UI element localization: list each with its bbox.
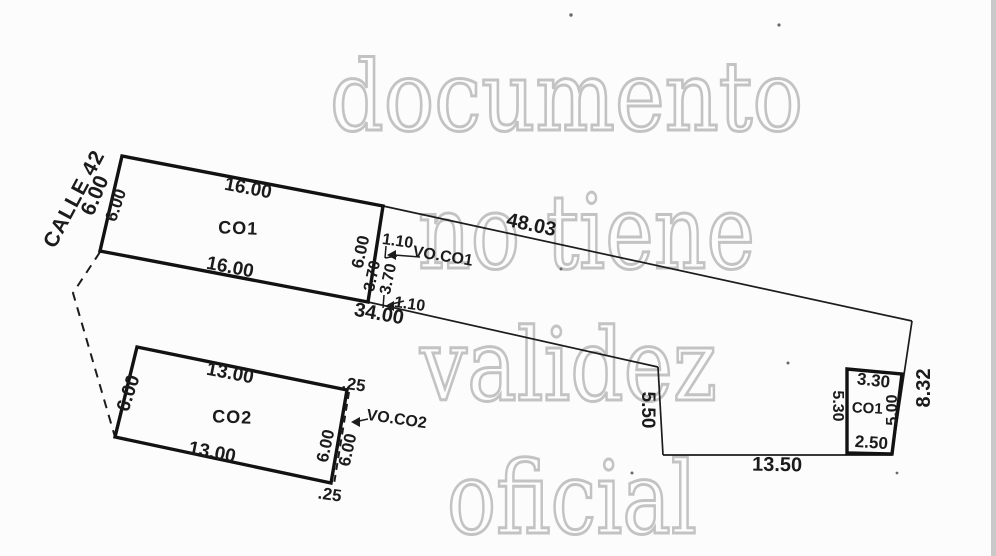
scan-speck: [569, 13, 572, 16]
scan-speck: [560, 268, 563, 271]
plan-drawing: documento no tiene validez oficial: [0, 0, 996, 556]
scan-speck: [787, 362, 790, 365]
scan-speck: [631, 472, 634, 475]
scanned-survey-plan: documento no tiene validez oficial: [0, 0, 996, 556]
watermark-word-oficial: oficial: [447, 440, 697, 556]
co2-south-label: 13.00: [187, 438, 238, 468]
co2-north-label: 13.00: [205, 359, 256, 389]
scan-speck: [896, 472, 899, 475]
boundary-south-label: 13.50: [752, 454, 802, 477]
annex-east-label: 5.00: [884, 394, 901, 425]
annex-name-label: CO1: [851, 399, 883, 418]
co2-offset-bottom-label: .25: [317, 484, 343, 506]
watermark-word-no-tiene: no tiene: [418, 173, 755, 293]
boundary-step-label: 5.50: [637, 392, 658, 429]
annex-west-label: 5.30: [829, 390, 846, 421]
co1-south-label: 16.00: [205, 253, 256, 283]
watermark-word-validez: validez: [419, 307, 717, 424]
co1-name-label: CO1: [218, 217, 259, 238]
co2-west-label: 6.00: [113, 372, 144, 414]
co2-name-label: CO2: [212, 406, 253, 427]
vo-co1-arrowhead: [387, 250, 396, 260]
watermark-word-documento: documento: [330, 41, 803, 153]
annex-north-label: 3.30: [856, 369, 891, 391]
vo-co2-name-label: VO.CO2: [366, 407, 428, 432]
co2-offset-top-label: .25: [341, 374, 367, 396]
annex-south-label: 2.50: [854, 432, 888, 453]
scan-speck: [777, 23, 780, 26]
vo-co2-arrowhead: [351, 417, 360, 427]
boundary-east-label: 8.32: [913, 369, 935, 408]
boundary-west-dashed-line: [73, 252, 115, 437]
scan-edge-band: [991, 0, 996, 556]
co1-north-label: 16.00: [223, 174, 274, 204]
